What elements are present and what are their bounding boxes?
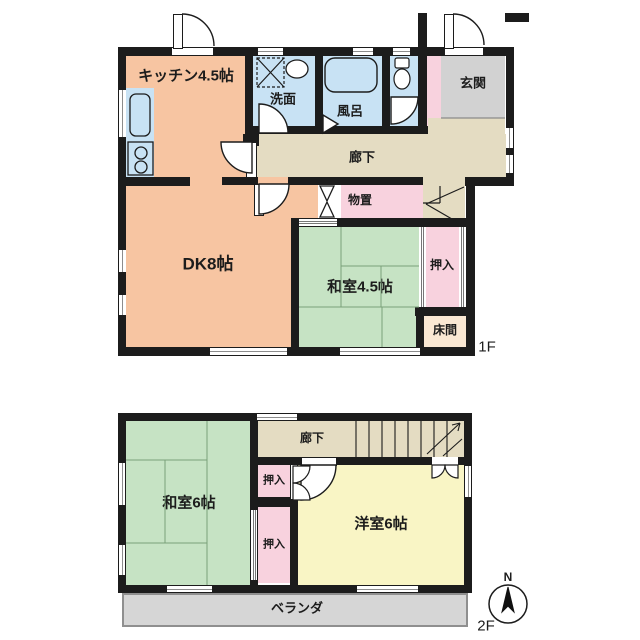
door-arc <box>453 14 484 45</box>
door-opening <box>432 458 458 465</box>
sliding-door <box>299 219 337 226</box>
wall <box>382 47 390 134</box>
room-label-closet-1f: 押入 <box>430 259 454 271</box>
compass-north-label: N <box>504 571 513 583</box>
wall <box>416 316 424 347</box>
bathroom <box>323 56 382 134</box>
door-leaf <box>173 14 183 49</box>
window <box>465 466 471 497</box>
sliding-door <box>251 510 257 580</box>
window <box>353 48 373 55</box>
dk-room <box>245 177 291 347</box>
wall <box>458 457 464 465</box>
window <box>210 348 287 355</box>
corridor-room <box>253 134 506 177</box>
window <box>119 90 126 137</box>
door-opening <box>291 465 297 499</box>
door-leaf <box>246 142 257 178</box>
wall <box>464 413 472 593</box>
room-label-entrance: 玄関 <box>460 77 486 90</box>
floor-label-2f: 2F <box>477 619 495 634</box>
wall <box>466 177 475 356</box>
room-label-bath: 風呂 <box>337 105 363 118</box>
room-label-corridor-2f: 廊下 <box>300 432 324 444</box>
room-label-japanese-room-2f: 和室6帖 <box>162 496 215 511</box>
floor-label-1f: 1F <box>478 340 496 355</box>
room-label-dk: DK8帖 <box>182 256 233 273</box>
wall <box>291 218 299 356</box>
window <box>357 586 418 592</box>
dk-room <box>291 185 318 218</box>
window <box>119 295 126 315</box>
room-label-washroom: 洗面 <box>270 93 296 106</box>
window <box>258 48 283 55</box>
room-label-closet-upper: 押入 <box>263 476 285 487</box>
door-leaf <box>444 14 454 49</box>
window <box>506 155 513 173</box>
wall <box>245 126 428 134</box>
room-label-western-room: 洋室6帖 <box>354 517 407 532</box>
folding-door <box>320 186 334 201</box>
window <box>119 545 125 575</box>
kitchen-counter <box>126 88 154 177</box>
floor-plan: キッチン4.5帖 洗面 風呂 玄関 廊下 物置 DK8帖 和室4.5帖 押入 床… <box>0 0 640 640</box>
wall <box>245 47 253 134</box>
wall <box>415 307 475 316</box>
sliding-door <box>459 227 466 307</box>
window <box>257 414 297 420</box>
door-leaf <box>301 457 337 466</box>
room-label-closet-lower: 押入 <box>263 540 285 551</box>
door-opening <box>172 48 213 55</box>
door-leaf <box>254 184 264 216</box>
window <box>393 48 410 55</box>
wall <box>288 177 423 185</box>
wall <box>418 13 427 134</box>
folding-door <box>320 202 334 217</box>
door-arc <box>182 14 214 46</box>
door-opening <box>445 48 483 55</box>
corridor-room <box>428 118 505 134</box>
room-label-veranda: ベランダ <box>271 602 323 615</box>
toilet-room <box>390 56 418 134</box>
wall <box>118 177 190 186</box>
window <box>340 348 420 355</box>
sliding-door <box>419 227 426 307</box>
wall <box>505 13 529 22</box>
window <box>119 463 125 505</box>
room-label-japanese-room-1f: 和室4.5帖 <box>327 280 393 295</box>
room-label-tokonoma: 床間 <box>433 324 457 336</box>
window <box>119 250 126 272</box>
stairs-area-2f <box>343 421 464 457</box>
room-label-storage: 物置 <box>348 194 372 206</box>
room-label-kitchen: キッチン4.5帖 <box>138 69 234 84</box>
wall <box>335 457 432 465</box>
window <box>167 586 212 592</box>
wall <box>315 47 323 134</box>
wall <box>222 177 258 185</box>
window <box>506 128 513 148</box>
room-label-corridor-1f: 廊下 <box>349 151 375 164</box>
